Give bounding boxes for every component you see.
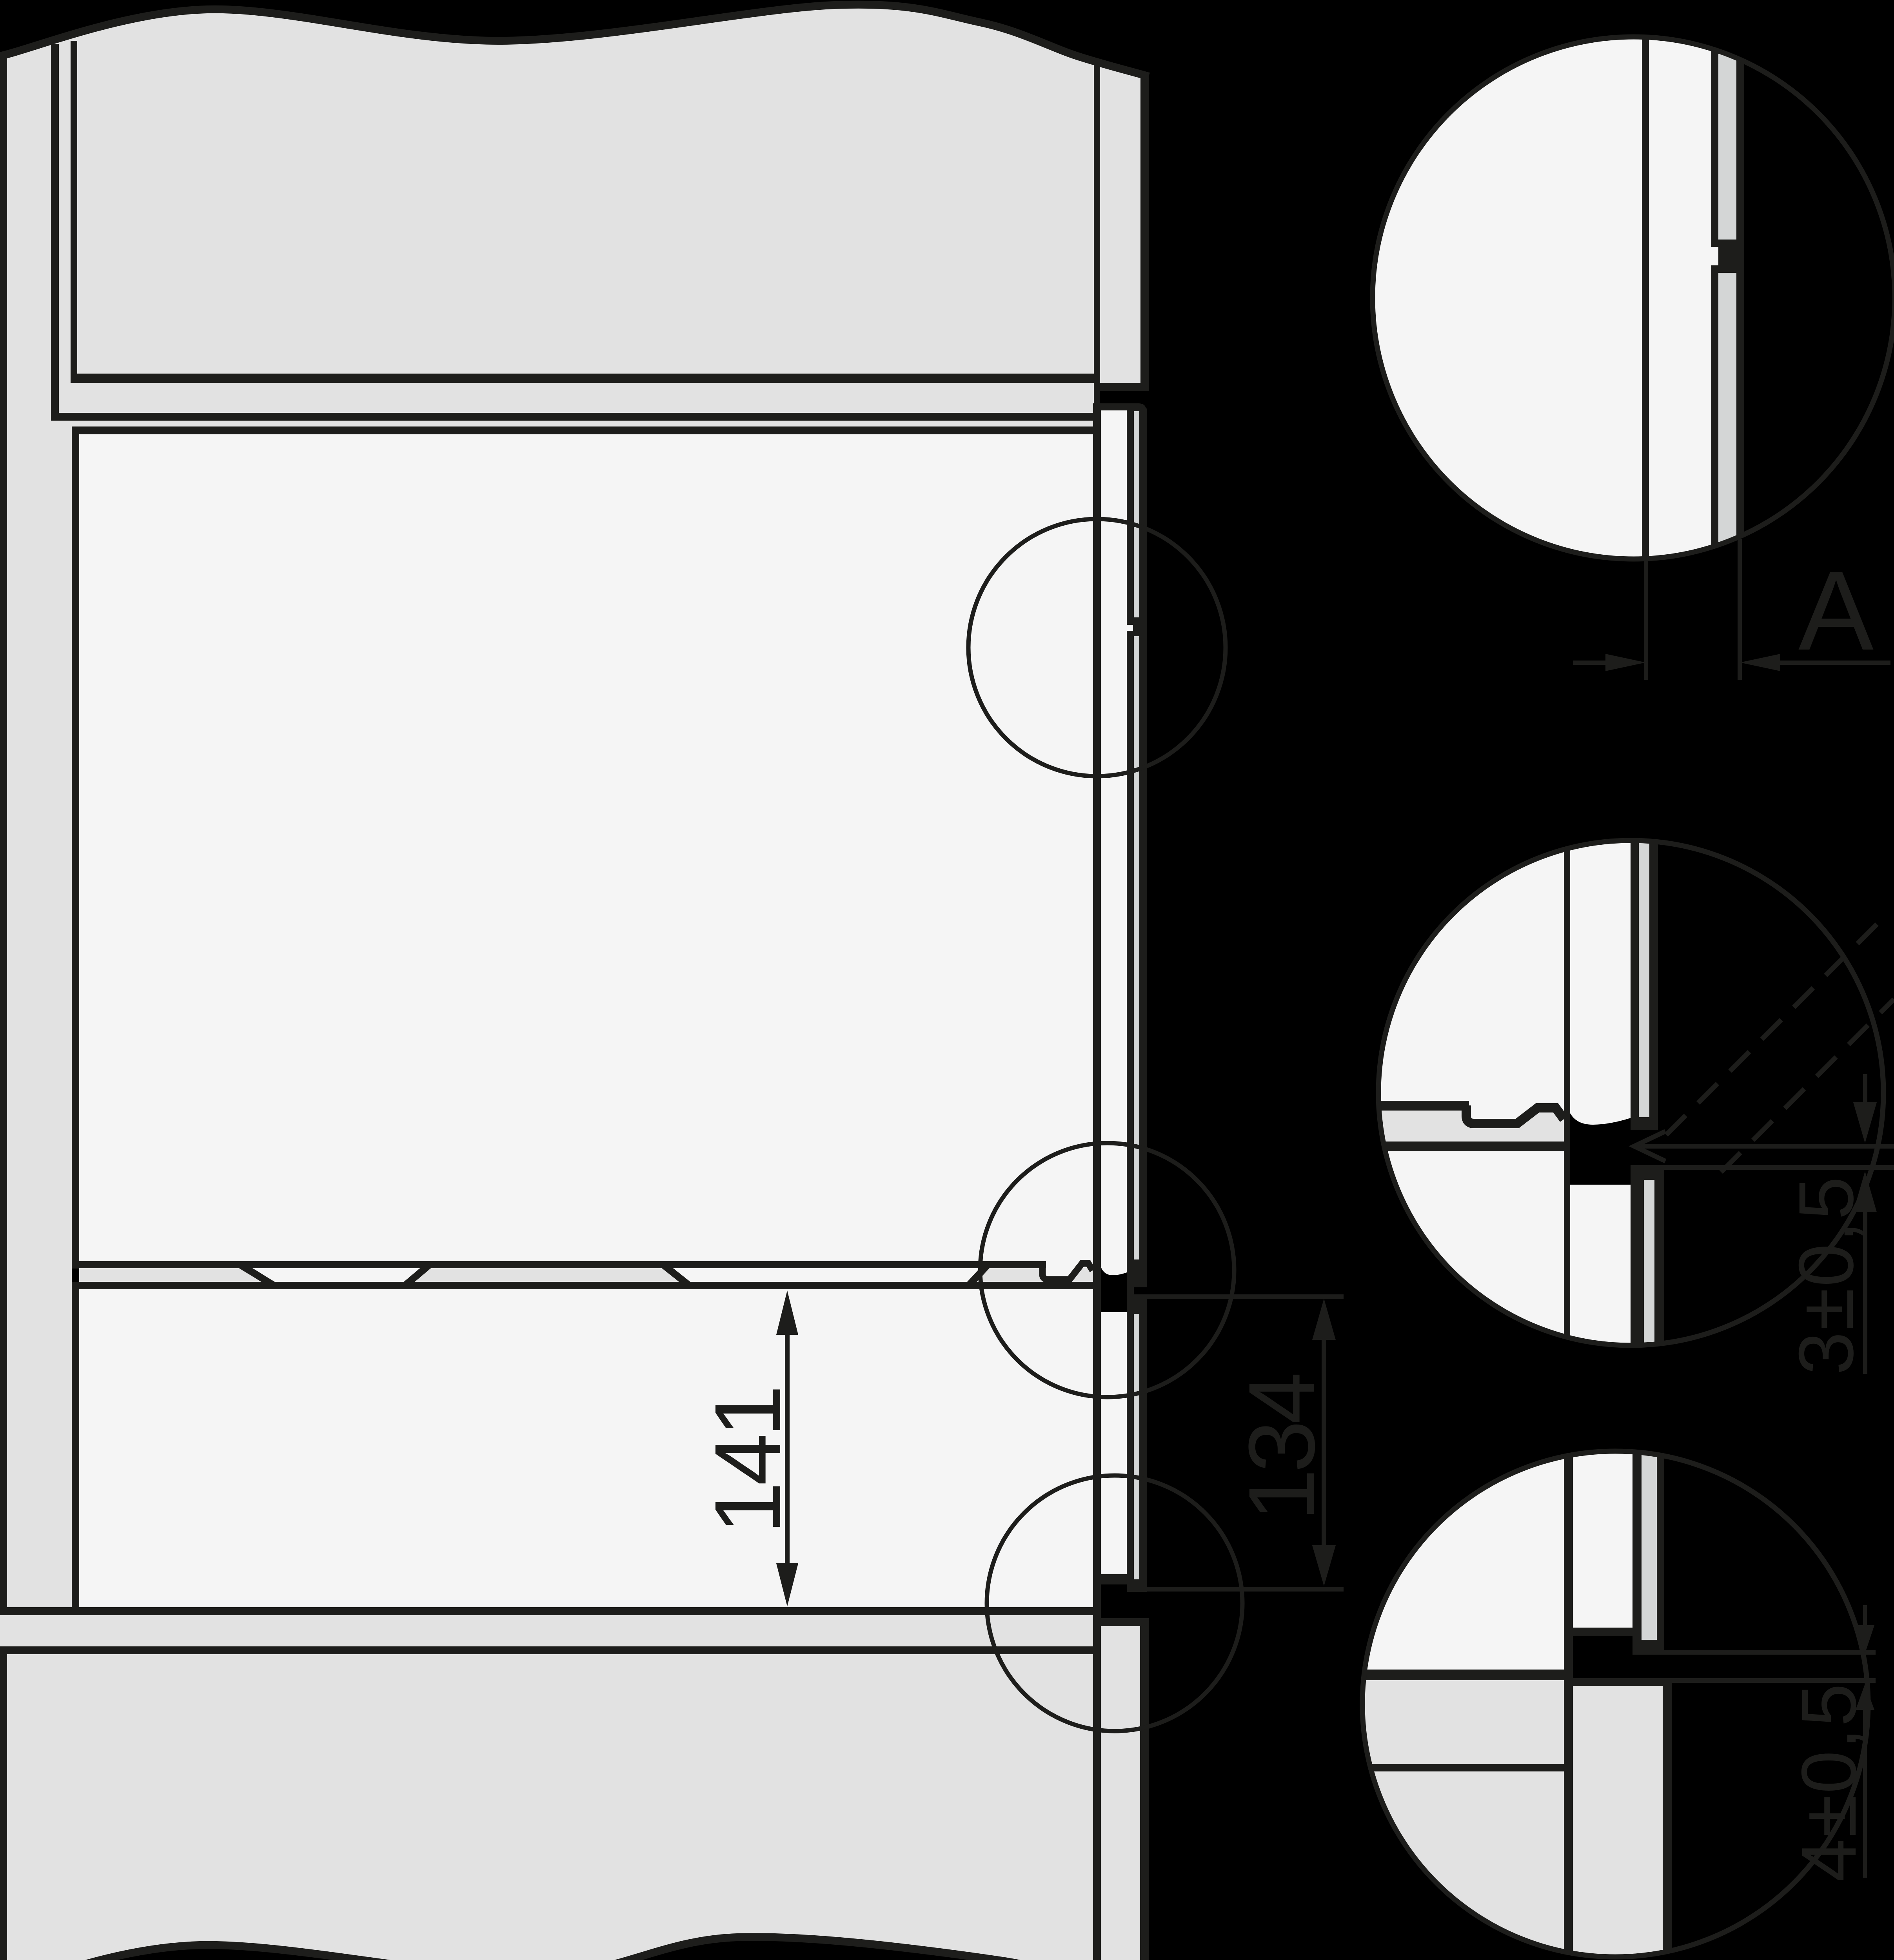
- svg-text:141: 141: [695, 1389, 800, 1534]
- svg-text:3±0,5: 3±0,5: [1783, 1175, 1869, 1375]
- svg-text:134: 134: [1229, 1374, 1334, 1521]
- svg-text:4±0,5: 4±0,5: [1785, 1682, 1872, 1882]
- svg-text:A: A: [1798, 548, 1874, 674]
